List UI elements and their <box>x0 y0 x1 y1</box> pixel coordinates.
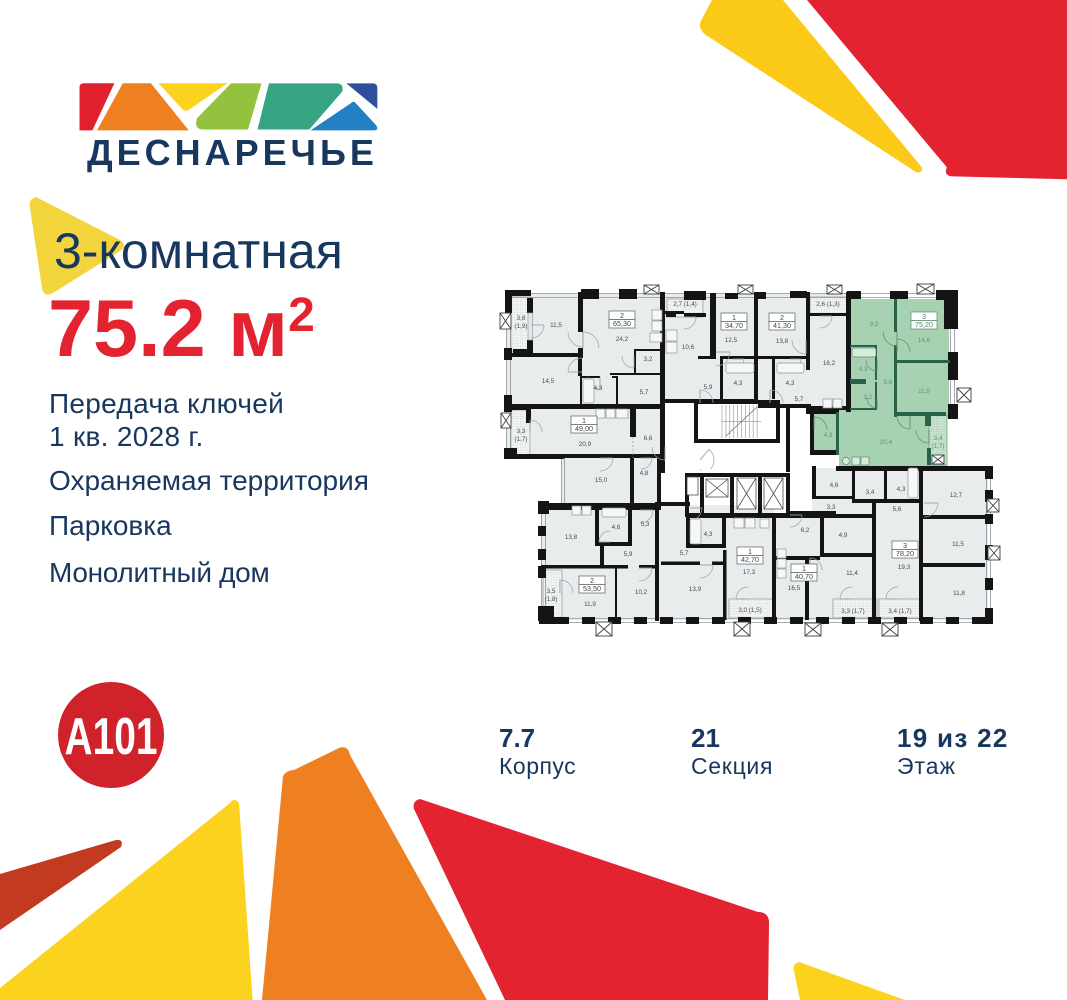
svg-text:3,5: 3,5 <box>547 588 556 595</box>
svg-text:3,0 (1,5): 3,0 (1,5) <box>738 607 761 614</box>
svg-text:11,5: 11,5 <box>952 541 964 548</box>
svg-text:3,4 (1,7): 3,4 (1,7) <box>888 608 911 615</box>
svg-text:4,3: 4,3 <box>594 385 603 392</box>
svg-text:14,6: 14,6 <box>918 337 931 344</box>
svg-text:13,9: 13,9 <box>689 586 702 593</box>
svg-text:40,70: 40,70 <box>795 572 813 581</box>
svg-text:4,3: 4,3 <box>859 366 868 373</box>
svg-text:78,20: 78,20 <box>896 549 914 558</box>
svg-text:(1,9): (1,9) <box>515 323 528 330</box>
svg-text:4,8: 4,8 <box>640 470 649 477</box>
svg-text:12,7: 12,7 <box>950 492 963 499</box>
svg-text:2,6 (1,3): 2,6 (1,3) <box>816 301 839 308</box>
svg-text:5,3: 5,3 <box>641 521 650 528</box>
svg-text:19,3: 19,3 <box>898 564 911 571</box>
svg-text:16,2: 16,2 <box>823 360 836 367</box>
svg-text:6,6: 6,6 <box>644 435 653 442</box>
svg-text:10,2: 10,2 <box>635 589 648 596</box>
svg-text:(1,7): (1,7) <box>515 436 528 443</box>
svg-text:2,7 (1,4): 2,7 (1,4) <box>673 301 696 308</box>
svg-text:11,9: 11,9 <box>584 601 596 608</box>
svg-text:3,4: 3,4 <box>934 435 943 442</box>
svg-text:41,30: 41,30 <box>773 321 791 330</box>
svg-text:53,50: 53,50 <box>583 584 601 593</box>
svg-text:4,3: 4,3 <box>824 432 833 439</box>
svg-text:(1,8): (1,8) <box>545 596 558 603</box>
svg-text:5,6: 5,6 <box>884 379 893 386</box>
svg-text:11,8: 11,8 <box>953 590 965 597</box>
svg-text:20,4: 20,4 <box>880 439 893 446</box>
svg-text:10,6: 10,6 <box>682 344 695 351</box>
svg-text:17,3: 17,3 <box>743 569 756 576</box>
svg-text:4,6: 4,6 <box>830 482 839 489</box>
svg-text:6,2: 6,2 <box>801 527 810 534</box>
svg-text:5,6: 5,6 <box>893 506 902 513</box>
svg-text:16,5: 16,5 <box>788 585 801 592</box>
svg-text:3,3: 3,3 <box>827 504 836 511</box>
svg-text:4,6: 4,6 <box>612 524 621 531</box>
svg-text:14,5: 14,5 <box>542 378 555 385</box>
svg-text:20,9: 20,9 <box>579 441 592 448</box>
svg-text:12,5: 12,5 <box>725 337 738 344</box>
svg-text:5,7: 5,7 <box>640 389 649 396</box>
svg-text:75,20: 75,20 <box>915 320 933 329</box>
svg-text:4,9: 4,9 <box>839 532 848 539</box>
svg-text:5,7: 5,7 <box>680 550 689 557</box>
svg-text:34,70: 34,70 <box>725 321 743 330</box>
svg-text:5,7: 5,7 <box>795 396 804 403</box>
svg-text:15,0: 15,0 <box>595 477 608 484</box>
svg-text:4,3: 4,3 <box>897 486 906 493</box>
svg-text:49,00: 49,00 <box>575 424 593 433</box>
svg-text:4,3: 4,3 <box>734 380 743 387</box>
svg-text:65,30: 65,30 <box>613 319 631 328</box>
svg-text:24,2: 24,2 <box>616 336 629 343</box>
svg-text:3,4: 3,4 <box>866 489 875 496</box>
svg-text:(1,7): (1,7) <box>932 443 945 450</box>
svg-text:9,2: 9,2 <box>870 321 879 328</box>
svg-text:11,9: 11,9 <box>918 388 930 395</box>
svg-text:5,9: 5,9 <box>704 384 713 391</box>
svg-text:13,8: 13,8 <box>565 534 578 541</box>
svg-text:3,2: 3,2 <box>644 356 653 363</box>
svg-text:4,3: 4,3 <box>704 531 713 538</box>
svg-text:13,8: 13,8 <box>776 338 789 345</box>
svg-text:3,8: 3,8 <box>517 315 526 322</box>
svg-text:5,9: 5,9 <box>624 551 633 558</box>
svg-text:3,2: 3,2 <box>864 394 873 401</box>
svg-text:3,3 (1,7): 3,3 (1,7) <box>841 608 864 615</box>
svg-text:11,4: 11,4 <box>846 570 858 577</box>
svg-text:4,3: 4,3 <box>786 380 795 387</box>
svg-text:3,3: 3,3 <box>517 428 526 435</box>
svg-text:42,70: 42,70 <box>741 555 759 564</box>
svg-text:11,5: 11,5 <box>550 322 562 329</box>
